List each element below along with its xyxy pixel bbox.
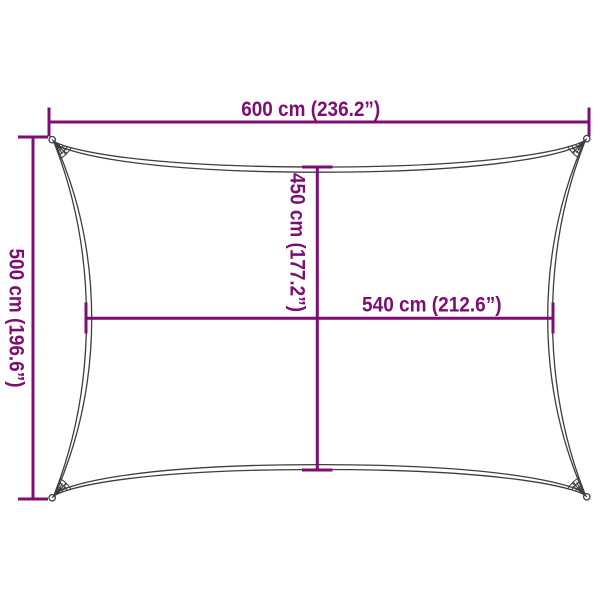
svg-text:600 cm (236.2”): 600 cm (236.2”) (241, 97, 380, 121)
svg-text:450 cm (177.2”): 450 cm (177.2”) (286, 173, 310, 312)
svg-text:540 cm (212.6”): 540 cm (212.6”) (362, 293, 502, 317)
svg-text:500 cm (196.6”): 500 cm (196.6”) (5, 249, 29, 388)
